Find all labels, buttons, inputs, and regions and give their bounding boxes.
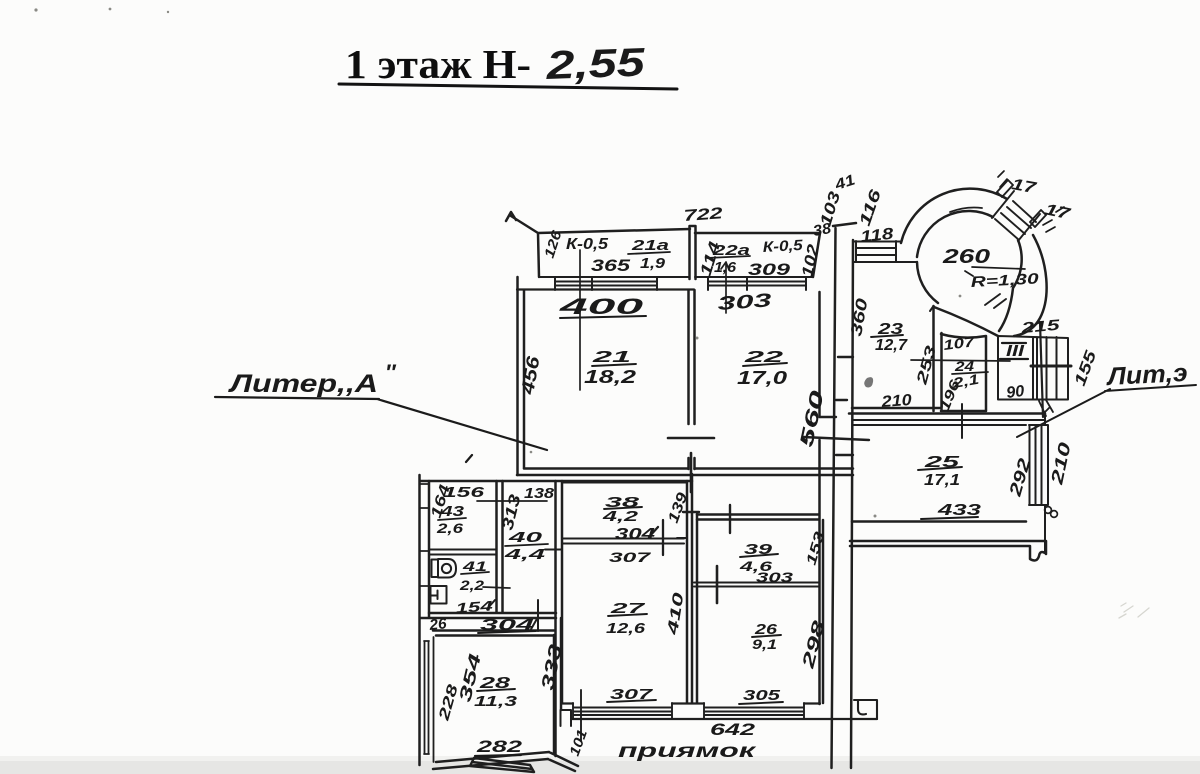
svg-text:1 этаж Н-: 1 этаж Н- (345, 41, 531, 87)
svg-text:253: 253 (913, 343, 940, 388)
svg-text:Литер,,А: Литер,,А (227, 370, 378, 398)
svg-text:282: 282 (475, 737, 522, 756)
svg-text:101: 101 (566, 727, 590, 758)
svg-text:210: 210 (880, 392, 912, 411)
svg-text:R=1,30: R=1,30 (970, 270, 1040, 291)
svg-text:41: 41 (832, 171, 857, 194)
svg-text:365: 365 (591, 256, 631, 275)
svg-text:722: 722 (683, 205, 723, 225)
svg-text:304: 304 (615, 526, 655, 543)
svg-text:260: 260 (942, 246, 990, 268)
svg-text:приямок: приямок (618, 741, 757, 762)
svg-text:303: 303 (756, 569, 793, 585)
svg-text:2,55: 2,55 (545, 41, 647, 88)
svg-text:17,0: 17,0 (737, 368, 787, 388)
svg-text:642: 642 (710, 720, 756, 739)
svg-text:12,7: 12,7 (875, 337, 908, 354)
svg-text:303: 303 (717, 290, 773, 315)
svg-text:155: 155 (1072, 347, 1101, 388)
svg-text:2,2: 2,2 (459, 577, 484, 593)
svg-text:17: 17 (1010, 176, 1038, 197)
svg-text:400: 400 (558, 294, 645, 319)
svg-text:11,3: 11,3 (474, 693, 518, 710)
svg-text:90: 90 (1005, 383, 1025, 402)
svg-text:9,1: 9,1 (752, 636, 777, 652)
svg-text:309: 309 (748, 260, 791, 279)
svg-text:116: 116 (857, 188, 885, 229)
svg-text:1,9: 1,9 (640, 255, 666, 272)
svg-text:К-0,5: К-0,5 (762, 237, 804, 256)
svg-text:4,4: 4,4 (503, 546, 546, 563)
svg-text:154: 154 (455, 597, 493, 616)
svg-text:118: 118 (860, 226, 895, 246)
svg-text:2,6: 2,6 (436, 520, 464, 536)
svg-text:138: 138 (524, 485, 555, 502)
svg-text:17,1: 17,1 (924, 472, 960, 489)
svg-text:107: 107 (942, 333, 976, 353)
svg-text:III: III (1006, 343, 1025, 360)
svg-text:196: 196 (936, 377, 963, 413)
svg-text:К-0,5: К-0,5 (566, 236, 609, 253)
svg-text:456: 456 (517, 354, 544, 397)
svg-text:12,6: 12,6 (606, 620, 646, 637)
svg-text:410: 410 (664, 590, 688, 637)
svg-text:″: ″ (385, 360, 397, 385)
svg-text:307: 307 (609, 549, 652, 565)
svg-text:560: 560 (796, 388, 829, 449)
svg-text:4,2: 4,2 (601, 508, 639, 525)
svg-text:21: 21 (591, 349, 631, 366)
svg-text:26: 26 (428, 615, 448, 634)
svg-text:215: 215 (1019, 317, 1061, 337)
svg-text:40: 40 (507, 529, 543, 546)
svg-text:17: 17 (1043, 201, 1073, 223)
svg-text:18,2: 18,2 (584, 367, 636, 387)
svg-text:103: 103 (818, 190, 845, 229)
svg-text:210: 210 (1047, 440, 1075, 487)
